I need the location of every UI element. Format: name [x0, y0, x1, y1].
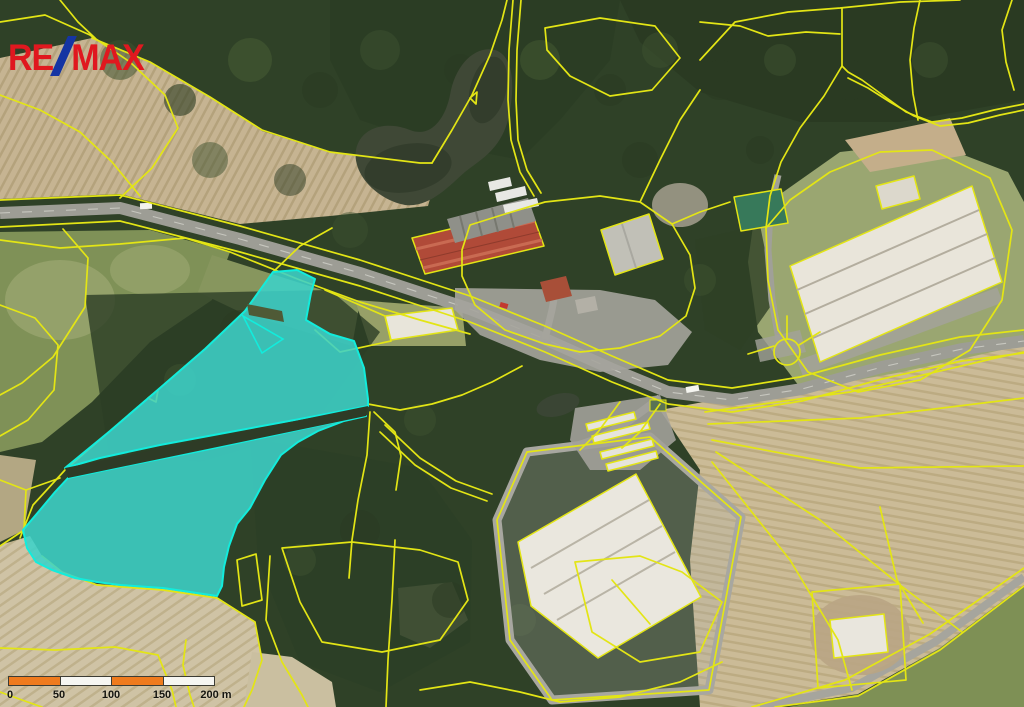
scale-label-200: 200 m — [200, 689, 231, 701]
scale-segment — [9, 677, 61, 685]
scale-label-0: 0 — [7, 689, 13, 701]
scale-label-100: 100 — [102, 689, 120, 701]
green-roof-building — [734, 189, 788, 231]
scale-segment — [112, 677, 164, 685]
property-aerial-map: RE MAX 0 50 100 150 200 m — [0, 0, 1024, 707]
scale-labels: 0 50 100 150 200 m — [8, 689, 228, 703]
scale-label-150: 150 — [153, 689, 171, 701]
farm-building-southeast — [830, 614, 888, 658]
scale-segment — [61, 677, 113, 685]
scale-bar: 0 50 100 150 200 m — [8, 676, 228, 703]
scale-label-50: 50 — [53, 689, 65, 701]
logo-max: MAX — [71, 40, 144, 77]
logo-re: RE — [8, 40, 53, 77]
remax-logo: RE MAX — [8, 40, 144, 76]
car-on-road-1 — [140, 203, 152, 209]
scale-bar-segments — [8, 676, 215, 686]
aerial-map-image — [0, 0, 1024, 707]
scale-segment — [164, 677, 215, 685]
